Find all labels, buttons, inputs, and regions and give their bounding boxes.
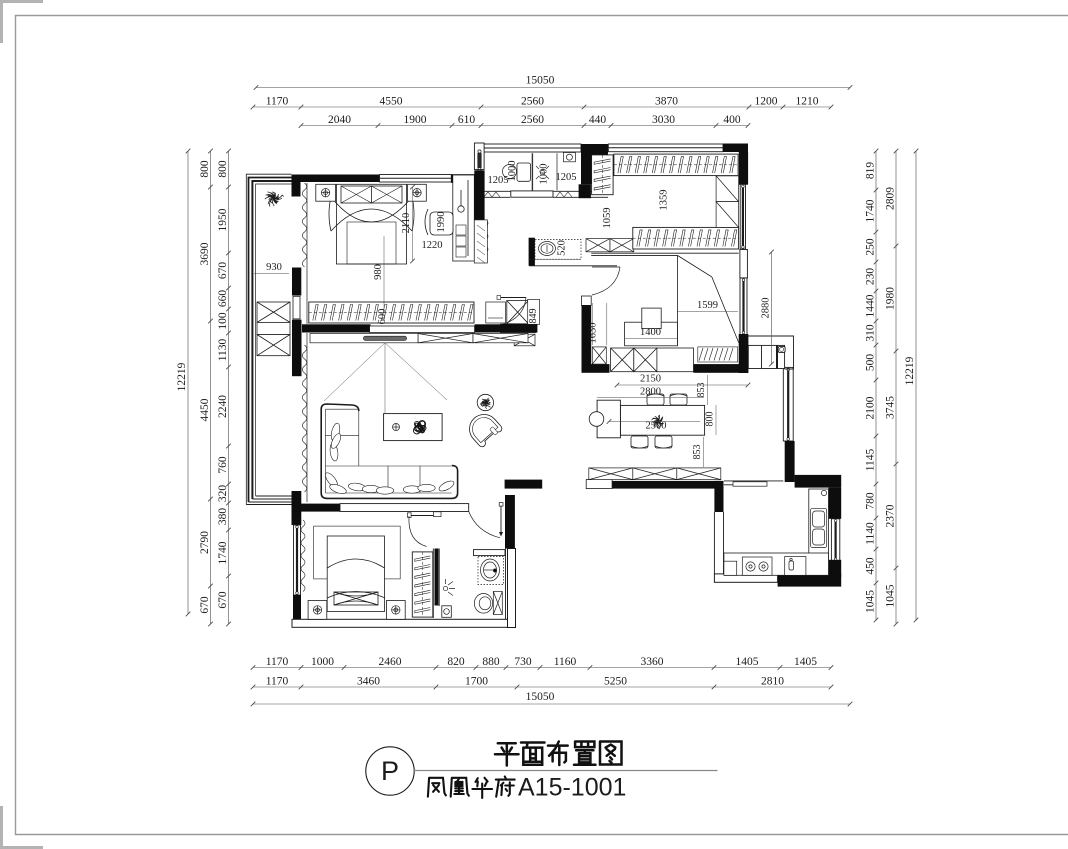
svg-text:660: 660 [217, 290, 229, 308]
svg-text:1205: 1205 [556, 172, 577, 183]
svg-text:1740: 1740 [217, 541, 229, 564]
svg-text:1059: 1059 [602, 208, 613, 229]
svg-text:1160: 1160 [554, 656, 577, 668]
svg-text:1170: 1170 [266, 676, 289, 688]
svg-text:853: 853 [692, 445, 703, 460]
svg-text:1140: 1140 [865, 522, 877, 545]
svg-text:2809: 2809 [885, 187, 897, 210]
svg-text:3745: 3745 [885, 396, 897, 419]
svg-text:1220: 1220 [422, 240, 443, 251]
svg-text:760: 760 [217, 456, 229, 474]
svg-text:800: 800 [217, 160, 229, 178]
svg-text:320: 320 [217, 485, 229, 503]
svg-text:600: 600 [377, 309, 388, 325]
svg-text:1000: 1000 [539, 164, 550, 185]
svg-text:2880: 2880 [761, 298, 772, 319]
svg-text:1145: 1145 [865, 448, 877, 471]
svg-text:3870: 3870 [655, 96, 678, 108]
svg-text:670: 670 [199, 596, 211, 614]
svg-text:2460: 2460 [379, 656, 402, 668]
svg-text:440: 440 [589, 114, 607, 126]
svg-text:A15-1001: A15-1001 [518, 774, 626, 802]
svg-text:2800: 2800 [640, 387, 661, 398]
svg-text:380: 380 [217, 508, 229, 526]
svg-text:1990: 1990 [436, 212, 447, 233]
svg-text:1700: 1700 [465, 676, 488, 688]
svg-text:15050: 15050 [526, 691, 555, 703]
svg-text:1740: 1740 [865, 199, 877, 222]
svg-text:820: 820 [447, 656, 465, 668]
svg-text:3030: 3030 [652, 114, 675, 126]
svg-text:250: 250 [865, 238, 877, 256]
svg-text:P: P [381, 756, 399, 786]
svg-text:780: 780 [865, 492, 877, 510]
svg-text:853: 853 [696, 383, 707, 398]
svg-text:1359: 1359 [659, 190, 670, 211]
svg-text:12219: 12219 [176, 362, 188, 391]
svg-text:819: 819 [865, 162, 877, 180]
svg-text:1045: 1045 [885, 584, 897, 607]
svg-text:1170: 1170 [266, 96, 289, 108]
svg-text:1950: 1950 [217, 208, 229, 231]
svg-text:520: 520 [557, 240, 568, 256]
svg-text:2560: 2560 [521, 114, 544, 126]
svg-text:1405: 1405 [794, 656, 817, 668]
svg-text:3460: 3460 [357, 676, 380, 688]
svg-text:1630: 1630 [588, 323, 599, 344]
svg-text:1400: 1400 [640, 327, 661, 338]
svg-text:980: 980 [373, 264, 384, 280]
svg-text:1200: 1200 [755, 96, 778, 108]
svg-text:1045: 1045 [865, 590, 877, 613]
svg-text:3360: 3360 [641, 656, 664, 668]
svg-text:2100: 2100 [865, 396, 877, 419]
svg-text:500: 500 [865, 354, 877, 372]
svg-text:4550: 4550 [380, 96, 403, 108]
svg-text:4450: 4450 [199, 398, 211, 421]
svg-text:1405: 1405 [736, 656, 759, 668]
svg-text:5250: 5250 [604, 676, 627, 688]
svg-text:1210: 1210 [796, 96, 819, 108]
svg-text:400: 400 [723, 114, 741, 126]
svg-text:2560: 2560 [521, 96, 544, 108]
svg-text:610: 610 [458, 114, 476, 126]
svg-text:450: 450 [865, 557, 877, 575]
svg-text:1000: 1000 [507, 161, 518, 182]
svg-text:2790: 2790 [199, 531, 211, 554]
svg-text:15050: 15050 [526, 75, 555, 87]
svg-text:2150: 2150 [640, 374, 661, 385]
svg-text:2240: 2240 [217, 395, 229, 418]
svg-text:100: 100 [217, 312, 229, 330]
svg-text:2040: 2040 [328, 114, 351, 126]
svg-text:1130: 1130 [217, 338, 229, 361]
svg-text:670: 670 [217, 262, 229, 280]
svg-text:1205: 1205 [488, 175, 509, 186]
svg-text:730: 730 [514, 656, 532, 668]
svg-text:2110: 2110 [401, 213, 412, 234]
svg-text:2810: 2810 [761, 676, 784, 688]
svg-text:3690: 3690 [199, 242, 211, 265]
svg-text:930: 930 [266, 262, 282, 273]
svg-text:1000: 1000 [311, 656, 334, 668]
svg-text:849: 849 [528, 309, 539, 324]
svg-text:310: 310 [865, 324, 877, 342]
svg-text:1599: 1599 [697, 300, 718, 311]
svg-text:1170: 1170 [266, 656, 289, 668]
svg-text:880: 880 [482, 656, 500, 668]
svg-text:2500: 2500 [646, 421, 667, 432]
svg-text:12219: 12219 [904, 356, 916, 385]
svg-text:1980: 1980 [885, 287, 897, 310]
svg-text:800: 800 [199, 160, 211, 178]
svg-text:2370: 2370 [885, 504, 897, 527]
svg-text:670: 670 [217, 591, 229, 609]
svg-text:1900: 1900 [404, 114, 427, 126]
svg-text:800: 800 [705, 412, 716, 427]
svg-text:1440: 1440 [865, 294, 877, 317]
svg-text:230: 230 [865, 268, 877, 286]
